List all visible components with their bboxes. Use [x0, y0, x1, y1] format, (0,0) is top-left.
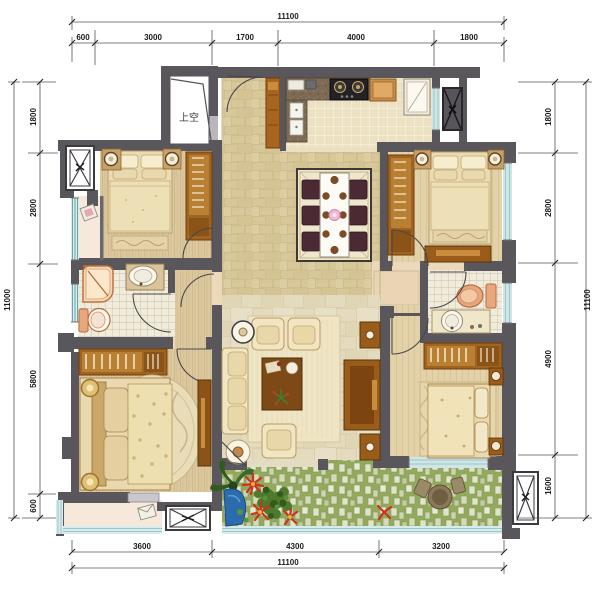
svg-text:3000: 3000 [144, 33, 162, 42]
svg-text:3200: 3200 [432, 542, 450, 551]
svg-text:1800: 1800 [29, 108, 38, 126]
svg-text:3600: 3600 [133, 542, 151, 551]
svg-text:4000: 4000 [347, 33, 365, 42]
svg-text:5800: 5800 [29, 370, 38, 388]
svg-text:11000: 11000 [3, 289, 12, 311]
svg-text:11100: 11100 [277, 12, 299, 21]
svg-text:上空: 上空 [179, 111, 199, 124]
svg-text:4300: 4300 [286, 542, 304, 551]
svg-text:600: 600 [76, 33, 90, 42]
svg-text:1800: 1800 [544, 108, 553, 126]
svg-text:1600: 1600 [544, 477, 553, 495]
svg-text:2800: 2800 [29, 199, 38, 217]
svg-text:4900: 4900 [544, 350, 553, 368]
svg-text:11100: 11100 [583, 289, 592, 311]
svg-text:600: 600 [29, 499, 38, 513]
svg-text:11100: 11100 [277, 558, 299, 567]
svg-text:1800: 1800 [460, 33, 478, 42]
svg-text:1700: 1700 [236, 33, 254, 42]
svg-text:2800: 2800 [544, 199, 553, 217]
